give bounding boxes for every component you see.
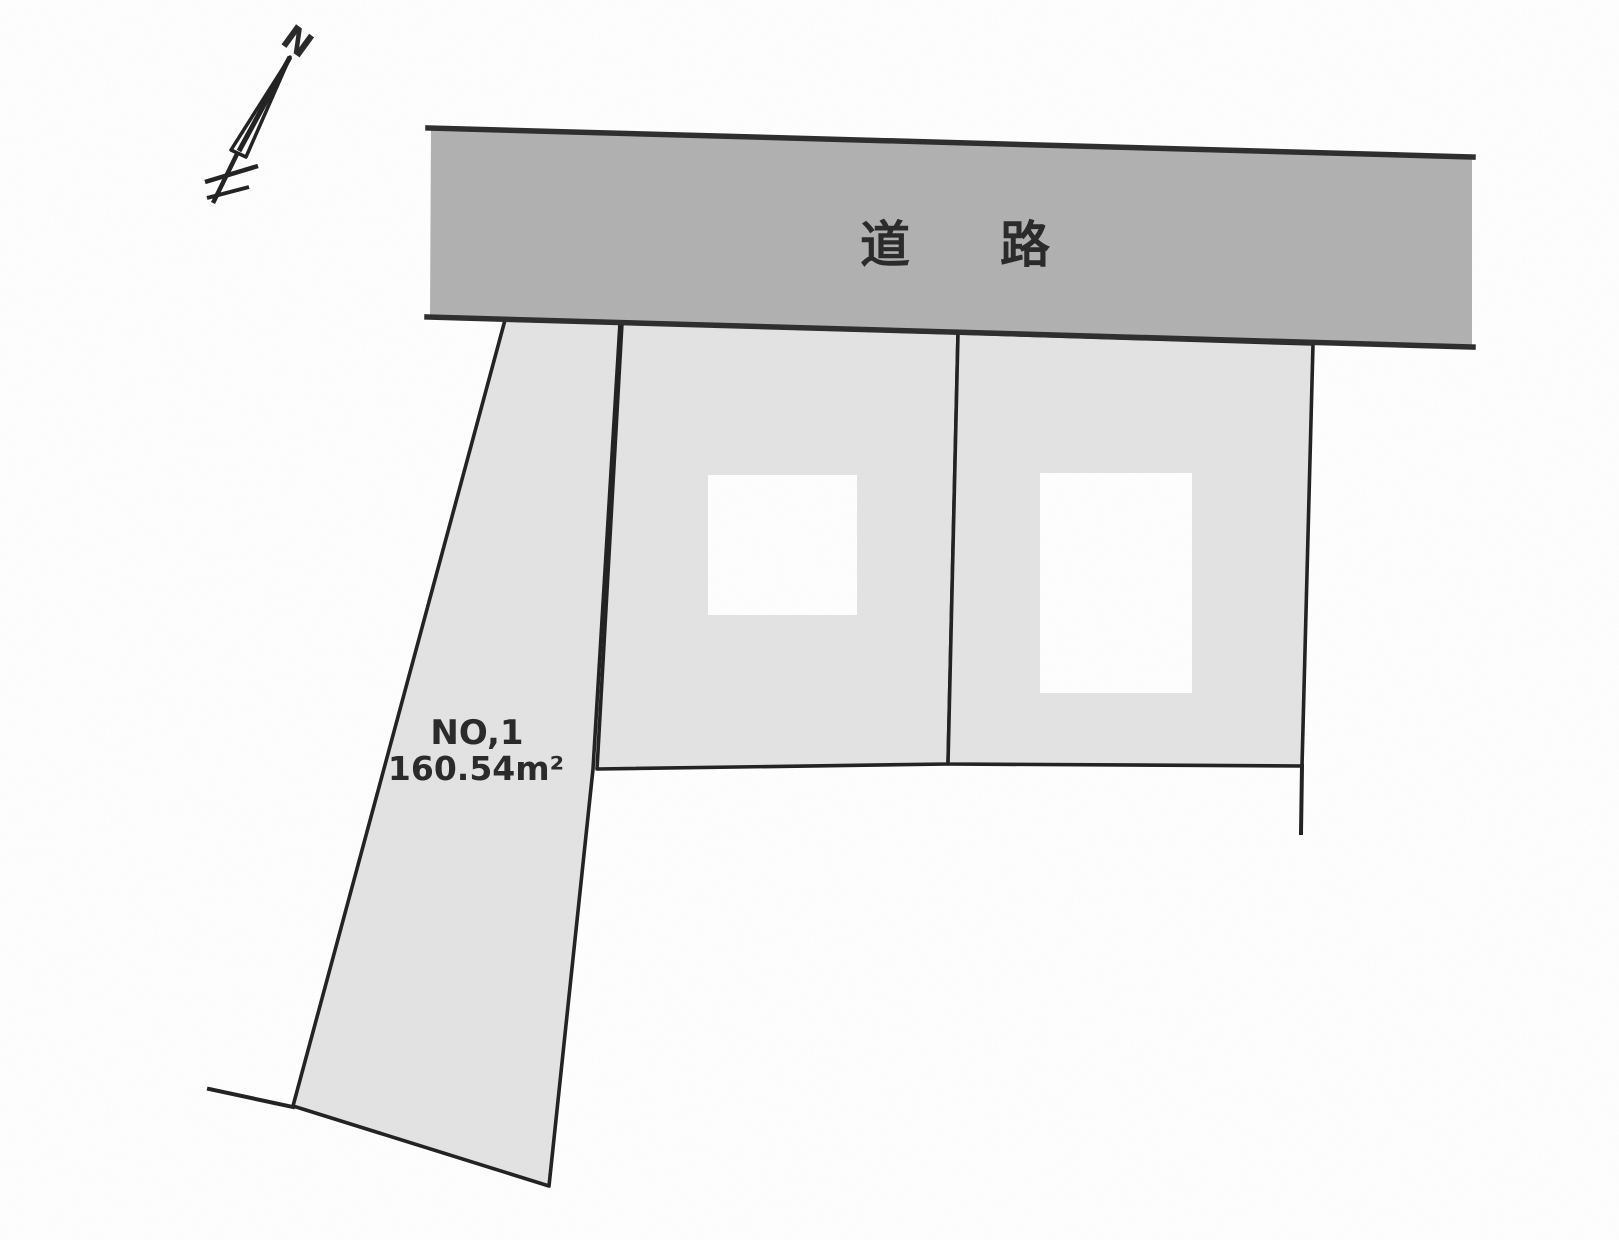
road-label: 道路 [860,216,1140,274]
north-arrow-shaft-upper [239,57,290,151]
parcel-right-boundary-tail [1301,766,1302,833]
building-footprint-center [708,475,857,615]
parcel-no1-id-label: NO,1 [430,713,523,753]
building-footprint-right [1040,473,1192,693]
site-plan-diagram: N 道路 NO,1 160.54m² [0,0,1619,1240]
site-plan-page: N 道路 NO,1 160.54m² [0,0,1619,1240]
north-label: N [274,17,321,66]
boundary-extension-line [209,1089,293,1107]
parcel-no1-area-label: 160.54m² [388,749,564,788]
north-arrow [205,57,290,203]
north-arrow-tick-2 [207,187,249,198]
